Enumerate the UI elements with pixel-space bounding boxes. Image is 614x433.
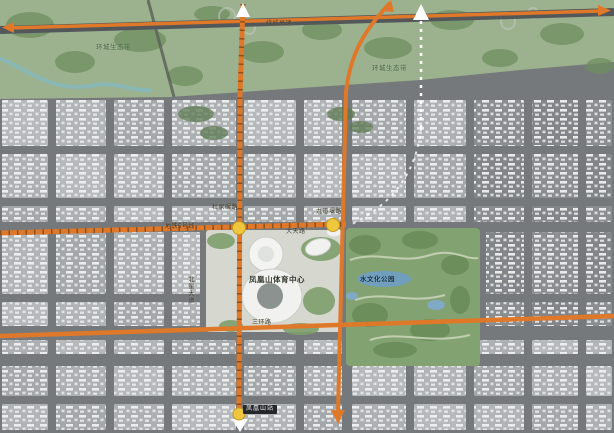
- building-footprints: [532, 302, 578, 326]
- building-footprints: [2, 232, 48, 294]
- building-footprints: [586, 232, 612, 294]
- building-footprints: [56, 100, 106, 146]
- building-footprints: [352, 366, 406, 396]
- building-footprints: [486, 232, 524, 294]
- label-dujianian-road: 杜家碾路: [212, 202, 238, 211]
- station-dot: [233, 222, 246, 235]
- building-footprints: [304, 366, 342, 396]
- building-footprints: [2, 340, 48, 354]
- building-footprints: [532, 366, 578, 396]
- building-footprints: [244, 154, 296, 198]
- building-footprints: [114, 340, 164, 354]
- building-footprints: [114, 206, 164, 222]
- building-footprints: [56, 366, 106, 396]
- building-footprints: [532, 232, 578, 294]
- building-footprints: [414, 206, 466, 222]
- building-footprints: [2, 100, 48, 146]
- pond: [427, 300, 445, 310]
- building-footprints: [172, 340, 236, 354]
- label-culture-park: 水文化公园: [360, 273, 395, 283]
- building-footprints: [474, 206, 524, 222]
- building-footprints: [114, 366, 164, 396]
- building-footprints: [304, 154, 342, 198]
- building-footprints: [352, 154, 406, 198]
- building-footprints: [114, 404, 164, 430]
- building-footprints: [414, 154, 466, 198]
- building-footprints: [114, 100, 164, 146]
- label-eco-belt-east: 环城生态带: [372, 62, 407, 72]
- station-dot: [327, 219, 340, 232]
- building-footprints: [414, 100, 466, 146]
- building-footprints: [474, 100, 524, 146]
- building-footprints: [114, 154, 164, 198]
- building-footprints: [172, 366, 236, 396]
- building-footprints: [56, 340, 106, 354]
- label-datian-road: 大天路: [286, 226, 306, 235]
- building-footprints: [56, 232, 106, 294]
- building-footprints: [474, 366, 524, 396]
- building-footprints: [56, 404, 106, 430]
- building-footprints: [474, 340, 524, 354]
- building-footprints: [586, 206, 612, 222]
- building-footprints: [352, 404, 406, 430]
- label-beixing-avenue: 北星大道: [186, 276, 195, 304]
- building-footprints: [304, 100, 342, 146]
- building-footprints: [532, 206, 578, 222]
- building-footprints: [114, 232, 164, 294]
- label-ring-expressway: 绕城高速: [266, 18, 292, 27]
- building-footprints: [304, 340, 342, 354]
- building-footprints: [414, 404, 466, 430]
- building-footprints: [586, 154, 612, 198]
- label-sports-center: 凤凰山体育中心: [249, 274, 305, 285]
- building-footprints: [114, 302, 164, 326]
- label-sanhuan-road: 三环路: [252, 317, 272, 326]
- building-footprints: [56, 154, 106, 198]
- building-footprints: [532, 154, 578, 198]
- planning-map: 绕城高速 环城生态带 环城生态带 杜家碾路 地铁5号线 九道堰路 大天路 凤凰山…: [0, 0, 614, 433]
- building-footprints: [532, 340, 578, 354]
- label-jiudaoyan-road: 九道堰路: [316, 206, 342, 215]
- building-footprints: [2, 302, 48, 326]
- building-footprints: [414, 366, 466, 396]
- building-footprints: [2, 404, 48, 430]
- building-footprints: [2, 366, 48, 396]
- label-eco-belt-west: 环城生态带: [96, 41, 131, 51]
- pond: [346, 292, 358, 300]
- building-footprints: [56, 206, 106, 222]
- building-footprints: [244, 206, 296, 222]
- map-canvas: [0, 0, 614, 433]
- building-footprints: [474, 154, 524, 198]
- building-footprints: [586, 100, 612, 146]
- building-footprints: [586, 366, 612, 396]
- building-footprints: [2, 206, 48, 222]
- building-footprints: [2, 154, 48, 198]
- building-footprints: [172, 302, 200, 326]
- building-footprints: [532, 100, 578, 146]
- building-footprints: [474, 404, 524, 430]
- building-footprints: [532, 404, 578, 430]
- building-footprints: [244, 366, 296, 396]
- culture-park-area: [346, 228, 480, 366]
- building-footprints: [586, 404, 612, 430]
- building-footprints: [56, 302, 106, 326]
- label-metro-line-5: 地铁5号线: [165, 221, 195, 230]
- building-footprints: [486, 302, 524, 326]
- station-badge: 凤凰山站: [243, 405, 277, 414]
- building-footprints: [172, 404, 236, 430]
- building-footprints: [586, 340, 612, 354]
- building-footprints: [244, 100, 296, 146]
- building-footprints: [244, 340, 296, 354]
- building-footprints: [172, 154, 236, 198]
